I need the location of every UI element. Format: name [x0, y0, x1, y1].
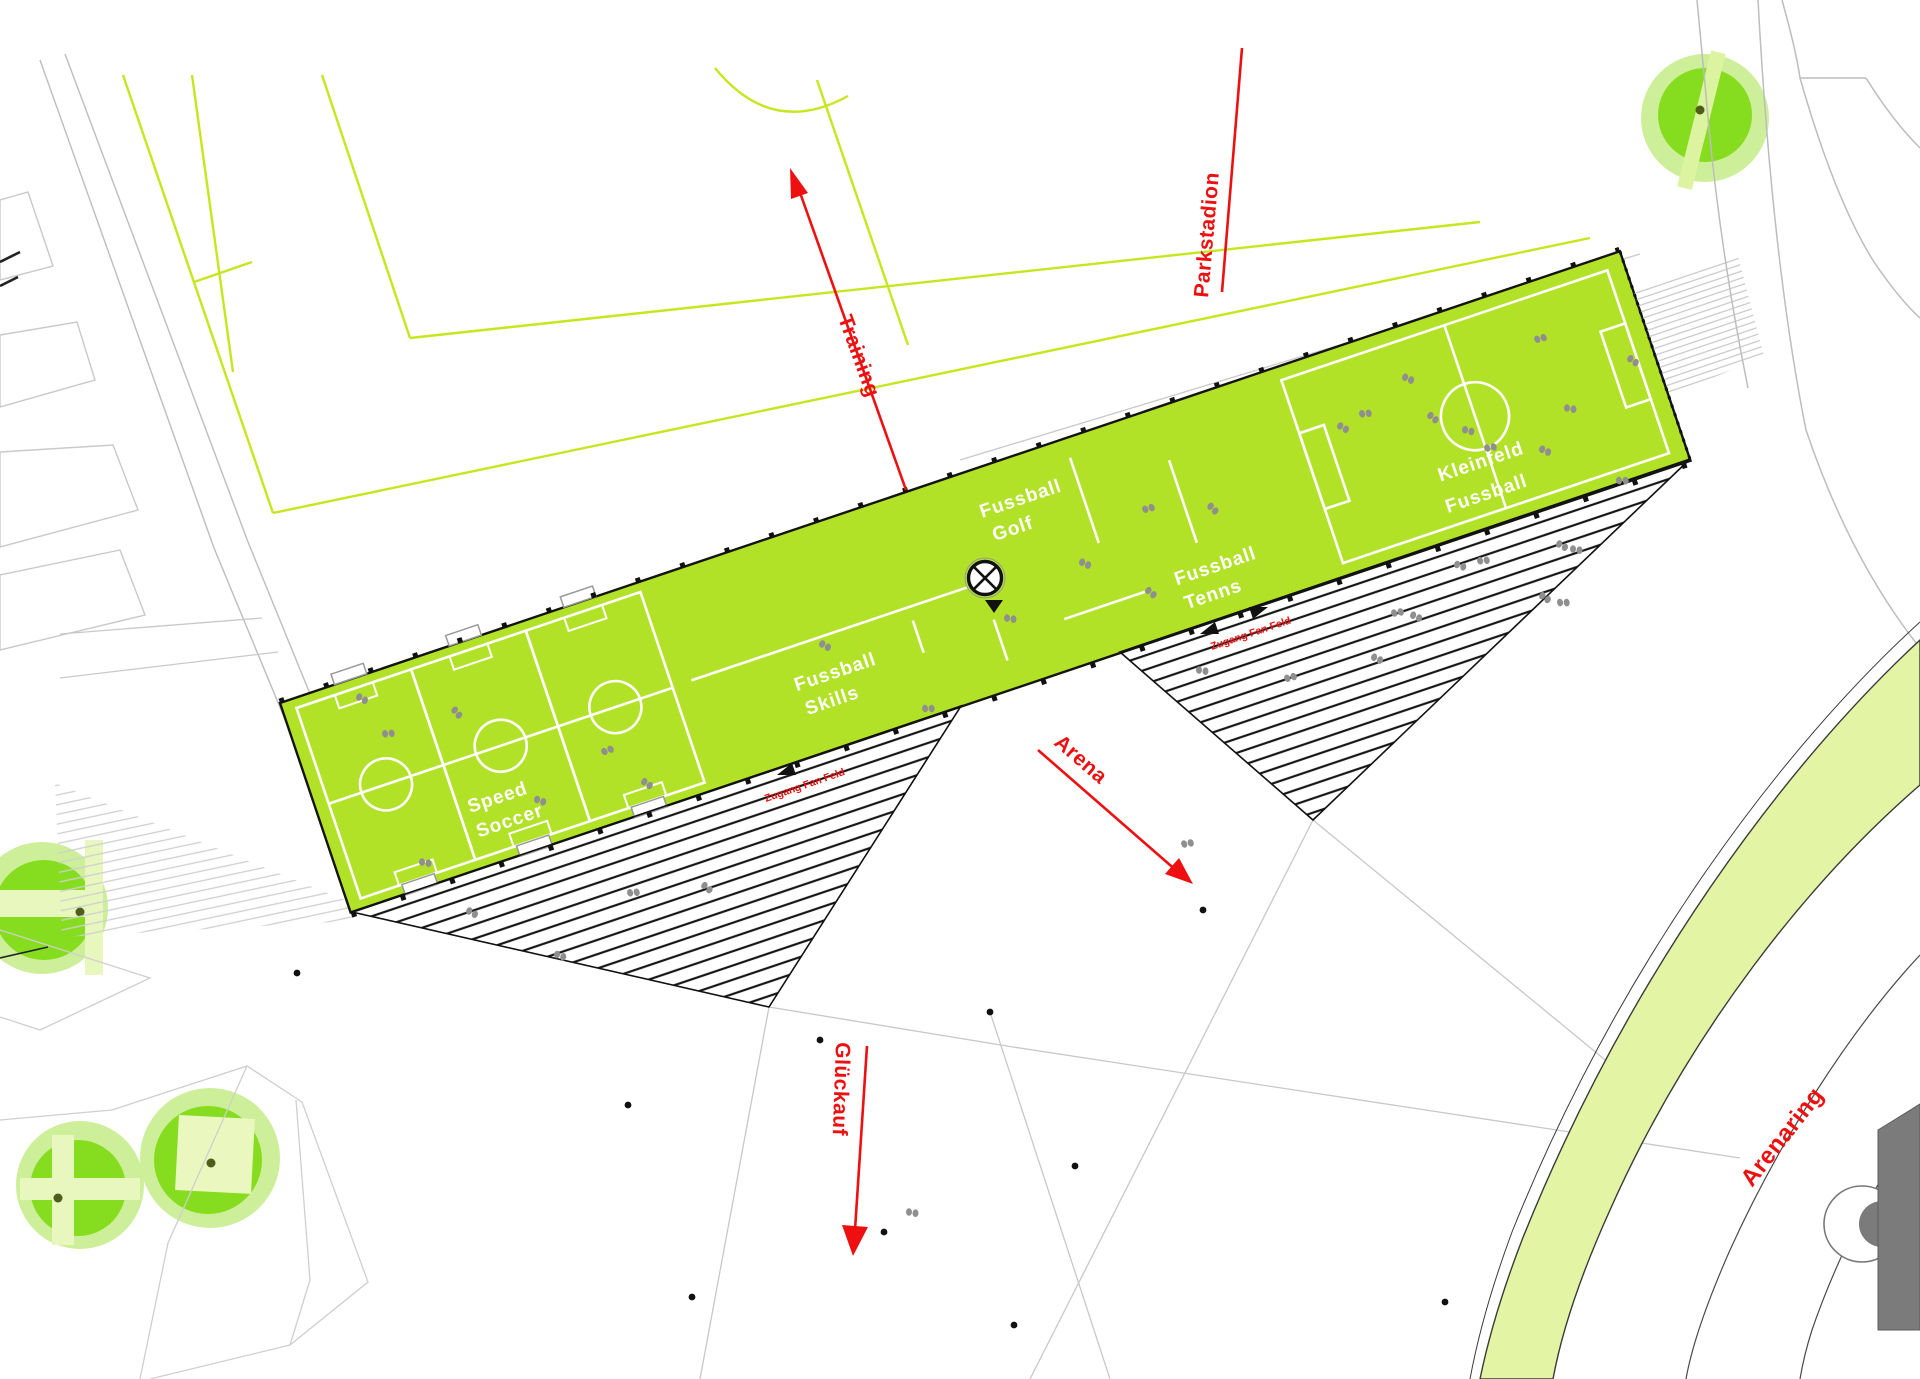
- person-symbol: [906, 1208, 919, 1217]
- label-parkstadion: Parkstadion: [1190, 171, 1224, 298]
- bollard-dot: [881, 1229, 888, 1236]
- building-bottom-right: [1824, 1104, 1920, 1330]
- bollard-dot: [625, 1102, 632, 1109]
- dots-layer: [294, 907, 1449, 1329]
- tree-left-b: [140, 1088, 280, 1228]
- label-training: Training: [833, 312, 884, 400]
- bollard-dot: [294, 970, 301, 977]
- person-symbol: [1180, 837, 1195, 850]
- tree-left-c: [16, 1121, 144, 1249]
- site-plan-svg: Speed Soccer Fussball Skills Fussball Go…: [0, 0, 1920, 1379]
- bollard-dot: [987, 1009, 994, 1016]
- site-plan: Speed Soccer Fussball Skills Fussball Go…: [0, 0, 1920, 1379]
- person-symbol: [1556, 597, 1570, 608]
- bollard-dot: [1442, 1299, 1449, 1306]
- stairs-west: [55, 783, 352, 937]
- bollard-dot: [817, 1037, 824, 1044]
- label-glueckauf: Glückauf: [828, 1042, 854, 1137]
- bollard-dot: [689, 1294, 696, 1301]
- bollard-dot: [1011, 1322, 1018, 1329]
- bollard-dot: [1200, 907, 1207, 914]
- label-arenaring: Arenaring: [1735, 1082, 1829, 1191]
- bollard-dot: [1072, 1163, 1079, 1170]
- label-arena: Arena: [1050, 730, 1112, 788]
- plaza-lines: [700, 820, 1740, 1379]
- arenaring-road: [1470, 622, 1920, 1379]
- tree-top-right: [1641, 50, 1769, 189]
